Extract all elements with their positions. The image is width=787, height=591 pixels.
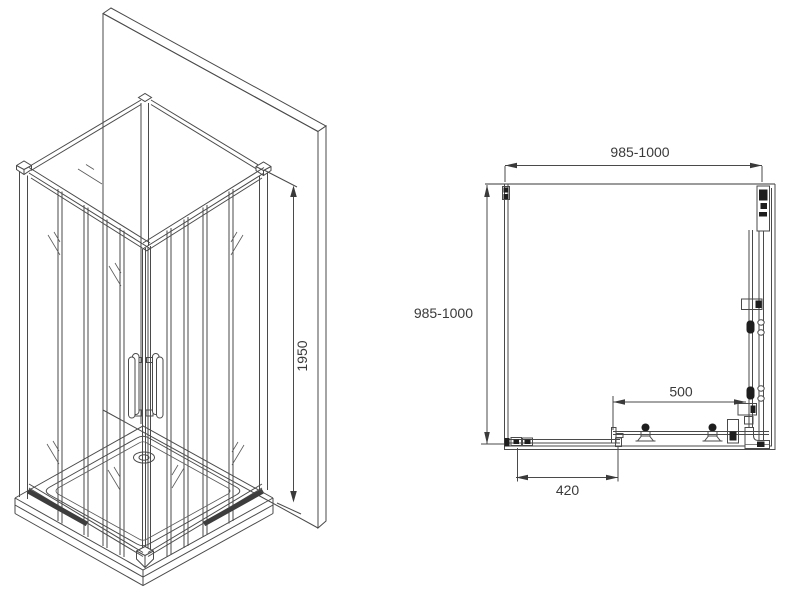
wall-right-face — [318, 126, 326, 528]
left-handle-bar — [129, 357, 136, 418]
dim-420-arrow-right — [606, 475, 618, 481]
bottom-roller-left — [636, 424, 656, 442]
roller-base — [708, 432, 717, 437]
dim-420-extensions — [518, 446, 619, 482]
plan-right-door — [738, 230, 770, 449]
dim-height-label: 1950 — [294, 340, 310, 371]
track-head-block-a — [759, 190, 768, 201]
right-roller-top — [747, 320, 765, 335]
wall-panel — [103, 8, 326, 528]
right-roller-bottom — [747, 386, 765, 401]
track-head-block-b — [761, 203, 768, 209]
wall-top-face — [103, 8, 326, 132]
plan-bottom-door-panel — [505, 438, 622, 447]
bottom-track-right-block — [730, 432, 737, 441]
door-panel-guide-b-block — [525, 440, 531, 445]
plan-inner-frame — [508, 184, 772, 446]
dim-depth-left: 985-1000 — [414, 185, 504, 444]
bottom-roller-right — [703, 424, 723, 442]
right-guide-block — [756, 301, 762, 309]
door-panel-guide-a-block — [514, 440, 520, 445]
technical-drawing: 1950 — [0, 0, 787, 591]
post-lines — [20, 103, 268, 553]
bracket-block-a — [504, 188, 509, 193]
drain-outer — [134, 452, 155, 463]
roller-flange-b — [758, 396, 764, 401]
dim-depth-arrow-bottom — [484, 432, 490, 444]
door-panel-wall-block — [505, 438, 510, 447]
plan-frame — [485, 184, 775, 450]
right-stop-block — [751, 406, 756, 414]
roller-flange-a — [758, 386, 764, 391]
drawing-canvas: 1950 — [0, 0, 787, 591]
dim-width-arrow-right — [750, 163, 762, 169]
roller-flange-a — [758, 320, 764, 325]
dim-depth-arrow-top — [484, 185, 490, 197]
plan-outer-frame — [505, 184, 776, 450]
roller-base — [641, 432, 650, 437]
right-handle-foot-top — [147, 358, 153, 363]
wall-edges — [103, 14, 318, 529]
plan-top-right-hardware — [757, 186, 770, 231]
dim-height-arrow-top — [290, 186, 297, 198]
back-glass-top-edges — [30, 100, 260, 171]
dim-door-420: 420 — [516, 446, 618, 498]
dim-height: 1950 — [264, 170, 310, 514]
roller-feet — [636, 436, 656, 441]
track-head-block-c — [759, 212, 767, 217]
roller-feet — [703, 436, 723, 441]
dim-width-label: 985-1000 — [610, 144, 669, 160]
dim-height-arrow-bottom — [290, 491, 297, 503]
roller-wheel — [709, 424, 717, 432]
plan-view: 985-1000 985-1000 500 420 — [414, 144, 775, 498]
dim-width-top: 985-1000 — [505, 144, 762, 182]
dim-500-label: 500 — [669, 384, 693, 400]
roller-body — [747, 321, 755, 334]
dim-width-arrow-left — [505, 163, 517, 169]
dim-width-extensions — [505, 166, 762, 182]
bracket-block-b — [504, 194, 509, 199]
dim-track-500: 500 — [613, 384, 746, 431]
right-handle-bar — [157, 357, 164, 418]
dim-depth-label: 985-1000 — [414, 305, 473, 321]
dim-420-label: 420 — [556, 482, 580, 498]
roller-body — [747, 387, 755, 400]
corner-elbow-block — [757, 442, 765, 448]
iso-view: 1950 — [15, 8, 326, 586]
dim-500-arrow-left — [613, 399, 625, 405]
right-handle-foot-bottom — [146, 410, 153, 416]
roller-wheel — [642, 424, 650, 432]
roller-flange-b — [758, 330, 764, 335]
